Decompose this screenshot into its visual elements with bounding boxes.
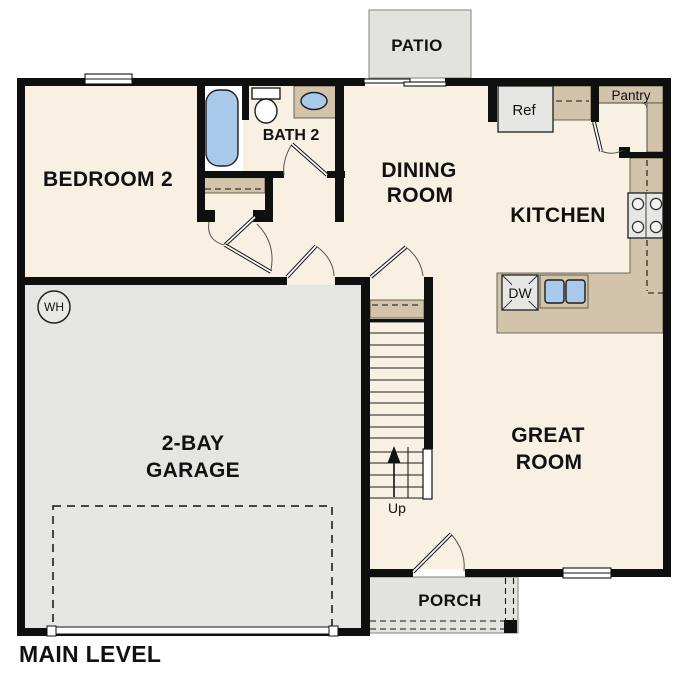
patio-slider-panel: [404, 82, 446, 86]
stair-top-wall-stub: [424, 277, 433, 285]
closet-wall-stub-left: [197, 210, 215, 222]
dining-west-wall: [335, 86, 344, 222]
burner-icon: [650, 221, 661, 232]
burner-icon: [632, 198, 643, 209]
pantry-corner-block: [619, 147, 630, 158]
exterior-wall-top-left: [17, 78, 365, 86]
refrigerator-label: Ref: [512, 102, 536, 119]
burner-icon: [650, 198, 661, 209]
garage-door: [47, 626, 338, 636]
floor-plan: PATIO BEDROOM 2 BATH 2 DINING ROOM KITCH…: [0, 0, 687, 687]
pantry-shelf-right: [647, 103, 663, 152]
kitchen-label: KITCHEN: [510, 204, 605, 227]
coat-closet-shelf: [370, 300, 424, 318]
garage-label-line1: 2-BAY: [162, 432, 225, 455]
bath-sink-icon: [301, 93, 327, 110]
exterior-wall-left: [17, 78, 25, 636]
garage-right-wall: [361, 277, 370, 636]
patio-slider-panel: [364, 79, 410, 83]
stair-right-wall: [424, 285, 433, 449]
bedroom-closet-shelf: [203, 177, 265, 193]
bedroom-east-wall: [197, 86, 205, 222]
water-heater-label: WH: [44, 300, 64, 314]
page-title: MAIN LEVEL: [19, 641, 161, 667]
dining-room-label-line2: ROOM: [387, 184, 454, 207]
garage-label-line2: GARAGE: [146, 459, 240, 482]
garage-door-end-cap: [47, 626, 56, 636]
garage-door-end-cap: [329, 626, 338, 636]
closet-east-wall: [265, 171, 273, 212]
kitchen-sink-basin-icon: [545, 280, 564, 303]
stair-landing-edge: [370, 319, 424, 322]
great-room-label-line1: GREAT: [511, 424, 584, 447]
porch-label: PORCH: [418, 591, 481, 610]
floor-plan-page: PATIO BEDROOM 2 BATH 2 DINING ROOM KITCH…: [0, 0, 687, 687]
dishwasher-label: DW: [508, 285, 532, 301]
burner-icon: [632, 221, 643, 232]
counter-by-ref: [553, 86, 591, 120]
stair-railing: [423, 449, 432, 499]
garage-floor: [25, 285, 361, 628]
dining-room-label-line1: DINING: [381, 159, 456, 182]
bedroom2-label: BEDROOM 2: [43, 168, 173, 191]
exterior-wall-top-right: [445, 78, 671, 86]
garage-door-panel: [52, 627, 333, 634]
toilet-bowl-icon: [255, 99, 277, 123]
pantry-bottom-wall: [628, 152, 663, 158]
pantry-label: Pantry: [611, 88, 650, 103]
porch-post: [504, 620, 517, 633]
toilet-tank-icon: [252, 88, 280, 99]
bath2-label: BATH 2: [263, 127, 320, 144]
great-room-label-line2: ROOM: [516, 451, 583, 474]
patio-label: PATIO: [391, 36, 442, 55]
bedroom-garage-wall: [17, 277, 287, 285]
exterior-wall-right: [663, 78, 671, 577]
stairs-up-label: Up: [388, 500, 406, 516]
kitchen-sink-basin-icon: [566, 280, 585, 303]
ref-wall-stub: [488, 86, 497, 122]
bathtub-icon: [206, 90, 238, 166]
tub-partition-stub: [242, 86, 249, 120]
pantry-wall-stub: [591, 86, 599, 122]
